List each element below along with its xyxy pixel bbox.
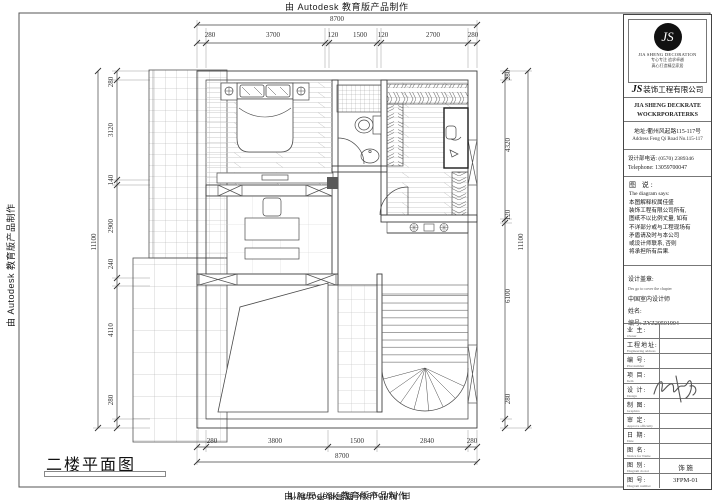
title-block: JS JIA SHENG DECORATION 专心专注 追求卓越 真心打造精品…	[623, 14, 712, 490]
row-sublabel: Notice for Name	[627, 454, 659, 458]
address-section: 地址:衢州风起路115-117号 Address Feng Qi Road No…	[624, 121, 711, 149]
lower-zone	[218, 283, 468, 412]
title-row-drawing-type: 图 别:Diagram do not 饰 施	[624, 458, 711, 473]
desk	[444, 108, 468, 168]
column	[327, 177, 338, 189]
seal-designer: 中国室内设计师	[628, 294, 711, 303]
staircase	[382, 294, 468, 411]
row-sublabel: Date	[627, 439, 659, 443]
row-label: 审 定:	[627, 415, 659, 424]
row-value	[660, 324, 711, 338]
row-label: 工程地址:	[627, 340, 659, 349]
dim-right-seg: 280	[504, 377, 512, 421]
dim-left-seg: 140	[107, 158, 115, 202]
note-line: 本图解释权属佳盛	[629, 199, 711, 207]
note-title-en: The diagram says:	[629, 191, 711, 197]
dim-bottom-seg: 280	[450, 437, 494, 445]
phone-en: Telephone: 13059700047	[628, 165, 711, 171]
wardrobe-bottom	[452, 172, 468, 215]
title-row-approval: 审 定:Approve officially	[624, 413, 711, 428]
note-line: 图纸不以比例丈量, 如有	[629, 215, 711, 223]
row-label: 图 号:	[627, 475, 659, 484]
dim-top-seg: 3700	[251, 31, 295, 39]
dim-right-seg: 4320	[504, 123, 512, 167]
note-line: 矛盾请及时与本公司	[629, 232, 711, 240]
dim-right-seg: 280	[504, 53, 512, 97]
dim-left-seg: 3120	[107, 108, 115, 152]
bathroom	[337, 85, 381, 164]
seal-label: 设计盖章:	[628, 277, 654, 283]
toilet	[355, 116, 381, 134]
dim-left-seg: 280	[107, 60, 115, 104]
row-value	[660, 429, 711, 443]
dim-bottom-seg: 280	[190, 437, 234, 445]
diagram-note: 图 说: The diagram says: 本图解释权属佳盛 装饰工程有限公司…	[624, 176, 711, 265]
dim-top-seg: 280	[188, 31, 232, 39]
balcony	[387, 222, 468, 233]
table	[245, 218, 299, 240]
dim-left-overall: 11100	[90, 220, 98, 264]
row-label: 日 期:	[627, 430, 659, 439]
note-line: 将承担所有后果.	[629, 248, 711, 256]
seal-name: 姓名:	[628, 306, 711, 315]
logo-tagline: 真心打造精品家居	[629, 63, 706, 69]
plant-symbol	[410, 224, 418, 232]
row-label: 业 主:	[627, 325, 659, 334]
shower-area	[337, 85, 381, 112]
row-sublabel: Graphics	[627, 409, 659, 413]
company-en-line: JIA SHENG DECKRATE	[624, 102, 711, 111]
dim-right-seg: 6100	[504, 274, 512, 318]
company-logo-icon: JS	[654, 23, 682, 51]
row-sublabel: Engineering address	[627, 349, 659, 353]
tv-bench	[217, 173, 333, 183]
wardrobe-top	[387, 84, 468, 104]
tv-cabinet	[245, 248, 299, 259]
note-title-cn: 图 说:	[629, 180, 711, 190]
dim-left-seg: 280	[107, 378, 115, 422]
company-cn-text: 装饰工程有限公司	[643, 85, 703, 94]
row-label: 编 号:	[627, 355, 659, 364]
corridor-tiles	[338, 285, 377, 412]
title-row-date: 日 期:Date	[624, 428, 711, 443]
address-cn: 地址:衢州风起路115-117号	[624, 126, 711, 135]
note-line: 或设计师联系, 否则	[629, 240, 711, 248]
dim-right-overall: 11100	[517, 220, 525, 264]
seal-section: 设计盖章: Des go to cover the chapter 中国室内设计…	[624, 265, 711, 323]
dim-right-seg: 120	[504, 193, 512, 237]
row-label: 图 名:	[627, 445, 659, 454]
row-value: 饰 施	[660, 459, 711, 473]
company-js-mark: JS	[632, 84, 643, 95]
logo-box: JS JIA SHENG DECORATION 专心专注 追求卓越 真心打造精品…	[628, 19, 707, 83]
row-value	[660, 339, 711, 353]
company-name-cn: JS装饰工程有限公司	[624, 84, 711, 95]
title-row-drawing-number: 图 号:Diagram number 3FPM-01	[624, 473, 711, 488]
study-room	[380, 80, 468, 215]
row-value	[660, 354, 711, 368]
logo-monogram: JS	[661, 29, 673, 44]
title-row-number: 编 号:Plot number	[624, 353, 711, 368]
row-label: 图 别:	[627, 460, 659, 469]
dim-top-seg: 120	[361, 31, 405, 39]
stool	[263, 198, 281, 216]
designer-signature	[648, 368, 703, 408]
row-value: 3FPM-01	[660, 474, 711, 488]
note-line: 装饰工程有限公司所有,	[629, 207, 711, 215]
dim-top-seg: 280	[451, 31, 495, 39]
plant-symbol	[440, 224, 448, 232]
dim-top-overall: 8700	[315, 15, 359, 23]
title-row-owner: 业 主:Owner	[624, 323, 711, 338]
sheet-frame	[19, 13, 710, 487]
company-name-en: JIA SHENG DECKRATE WOCKRPORATERKS	[624, 97, 711, 121]
plan-title-underline	[44, 471, 166, 477]
note-line: 不详部分或与工程现场有	[629, 224, 711, 232]
bedroom	[206, 80, 333, 185]
row-sublabel: Owner	[627, 334, 659, 338]
phone-section: 设计部电话: (0570) 2389346 Telephone: 1305970…	[624, 149, 711, 176]
bathroom-door	[338, 138, 364, 164]
seal-sublabel: Des go to cover the chapter	[628, 286, 711, 291]
address-en: Address Feng Qi Road No.115-117	[624, 137, 711, 142]
row-sublabel: Diagram number	[627, 484, 659, 488]
bed	[237, 83, 293, 152]
dim-top-seg: 2700	[411, 31, 455, 39]
dim-bottom-seg: 1500	[335, 437, 379, 445]
title-row-drawing-name: 图 名:Notice for Name	[624, 443, 711, 458]
dim-bottom-overall: 8700	[320, 452, 364, 460]
phone-cn: 设计部电话: (0570) 2389346	[628, 154, 711, 162]
title-row-project-address: 工程地址:Engineering address	[624, 338, 711, 353]
company-en-line: WOCKRPORATERKS	[624, 111, 711, 120]
dim-bottom-seg: 2840	[405, 437, 449, 445]
sloped-ceiling-outline	[218, 283, 328, 412]
dim-left-seg: 4110	[107, 308, 115, 352]
row-value	[660, 414, 711, 428]
row-sublabel: Approve officially	[627, 424, 659, 428]
row-sublabel: Diagram do not	[627, 469, 659, 473]
drawing-sheet: { "watermark": { "text": "由 Autodesk 教育版…	[0, 0, 712, 500]
dim-left-seg: 240	[107, 242, 115, 286]
dim-bottom-seg: 3800	[253, 437, 297, 445]
wardrobe-left	[387, 104, 403, 166]
row-value	[660, 444, 711, 458]
